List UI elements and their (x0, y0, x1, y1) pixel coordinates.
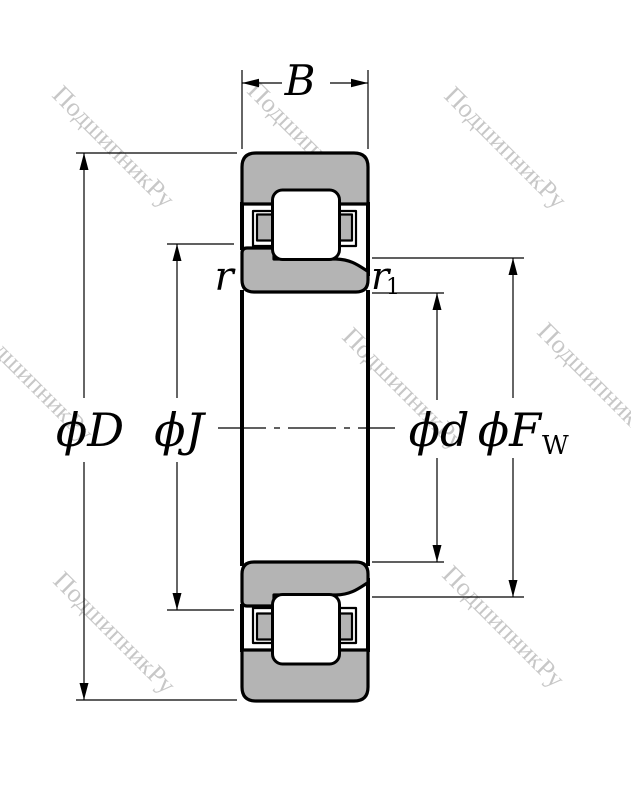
arrowhead-right (351, 79, 368, 87)
raceway-diameter-label: ϕF (478, 403, 543, 457)
rib-diameter-label: ϕJ (154, 403, 206, 457)
watermark-text: ПодшипникРу (48, 566, 182, 700)
arrowhead-left (242, 79, 259, 87)
watermark-text: ПодшипникРу (437, 560, 571, 694)
bottom-section (242, 562, 368, 701)
dimension-phiFw: ϕF W (372, 258, 569, 597)
cage-pocket-bottom-left (257, 614, 273, 640)
arrowhead-down (80, 683, 89, 700)
bore-diameter-label: ϕd (409, 403, 470, 457)
outer-diameter-label: ϕD (56, 403, 124, 457)
roller-top (273, 190, 340, 260)
watermark-text: ПодшипникРу (47, 80, 181, 214)
arrowhead-up (509, 258, 518, 275)
arrowhead-up (80, 153, 89, 170)
roller-bottom (273, 595, 340, 665)
bearing-drawing-canvas: ПодшипникРу ПодшипникРу ПодшипникРу Подш… (0, 0, 631, 792)
arrowhead-down (173, 593, 182, 610)
inner-chamfer-subscript: 1 (386, 275, 400, 300)
bearing-cross-section-diagram: ПодшипникРу ПодшипникРу ПодшипникРу Подш… (0, 0, 631, 792)
arrowhead-up (173, 244, 182, 261)
arrowhead-down (433, 545, 442, 562)
top-section (242, 153, 368, 292)
outer-chamfer-label: r (214, 254, 236, 300)
cage-pocket-top-left (257, 215, 273, 241)
width-label: B (284, 56, 316, 105)
arrowhead-up (433, 293, 442, 310)
arrowhead-down (509, 580, 518, 597)
watermark-text: ПодшипникРу (439, 81, 573, 215)
raceway-diameter-subscript: W (542, 431, 569, 461)
